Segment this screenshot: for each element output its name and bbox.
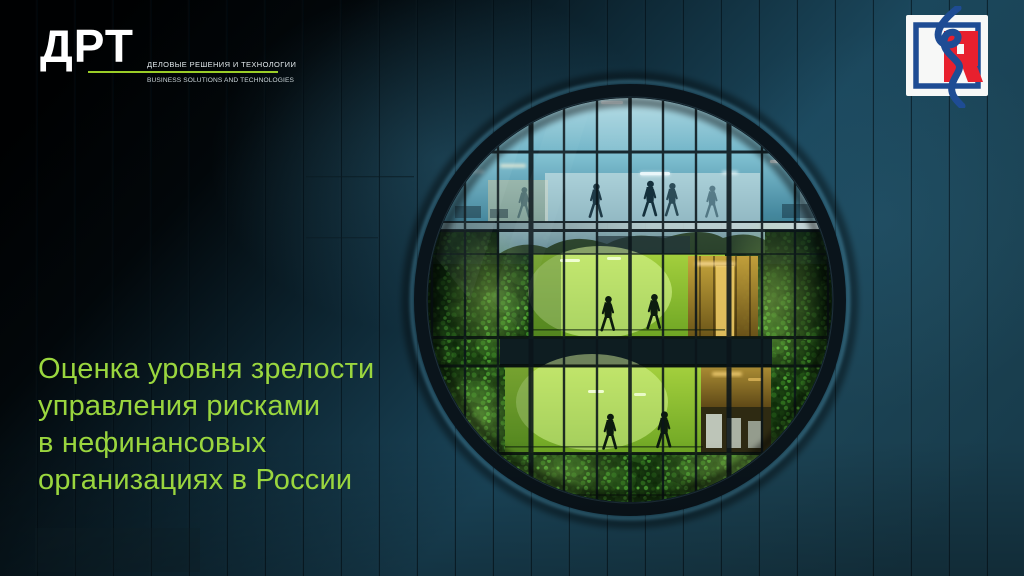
drt-tagline-en: BUSINESS SOLUTIONS AND TECHNOLOGIES [147, 77, 337, 84]
slide-title-line: организациях в России [38, 462, 458, 499]
slide-title-line: управления рисками [38, 388, 458, 425]
drt-logo-acronym: ДРТ [40, 22, 134, 70]
middle-room [528, 246, 758, 338]
drt-underline [88, 71, 278, 73]
drt-tagline-ru: ДЕЛОВЫЕ РЕШЕНИЯ И ТЕХНОЛОГИИ [147, 60, 337, 69]
slide-title-line: в нефинансовых [38, 425, 458, 462]
rusrisk-logo [903, 6, 991, 108]
slide-title-line: Оценка уровня зрелости [38, 351, 458, 388]
slide-title: Оценка уровня зрелости управления рискам… [38, 351, 458, 499]
slide: ДРТ ДЕЛОВЫЕ РЕШЕНИЯ И ТЕХНОЛОГИИ BUSINES… [0, 0, 1024, 576]
